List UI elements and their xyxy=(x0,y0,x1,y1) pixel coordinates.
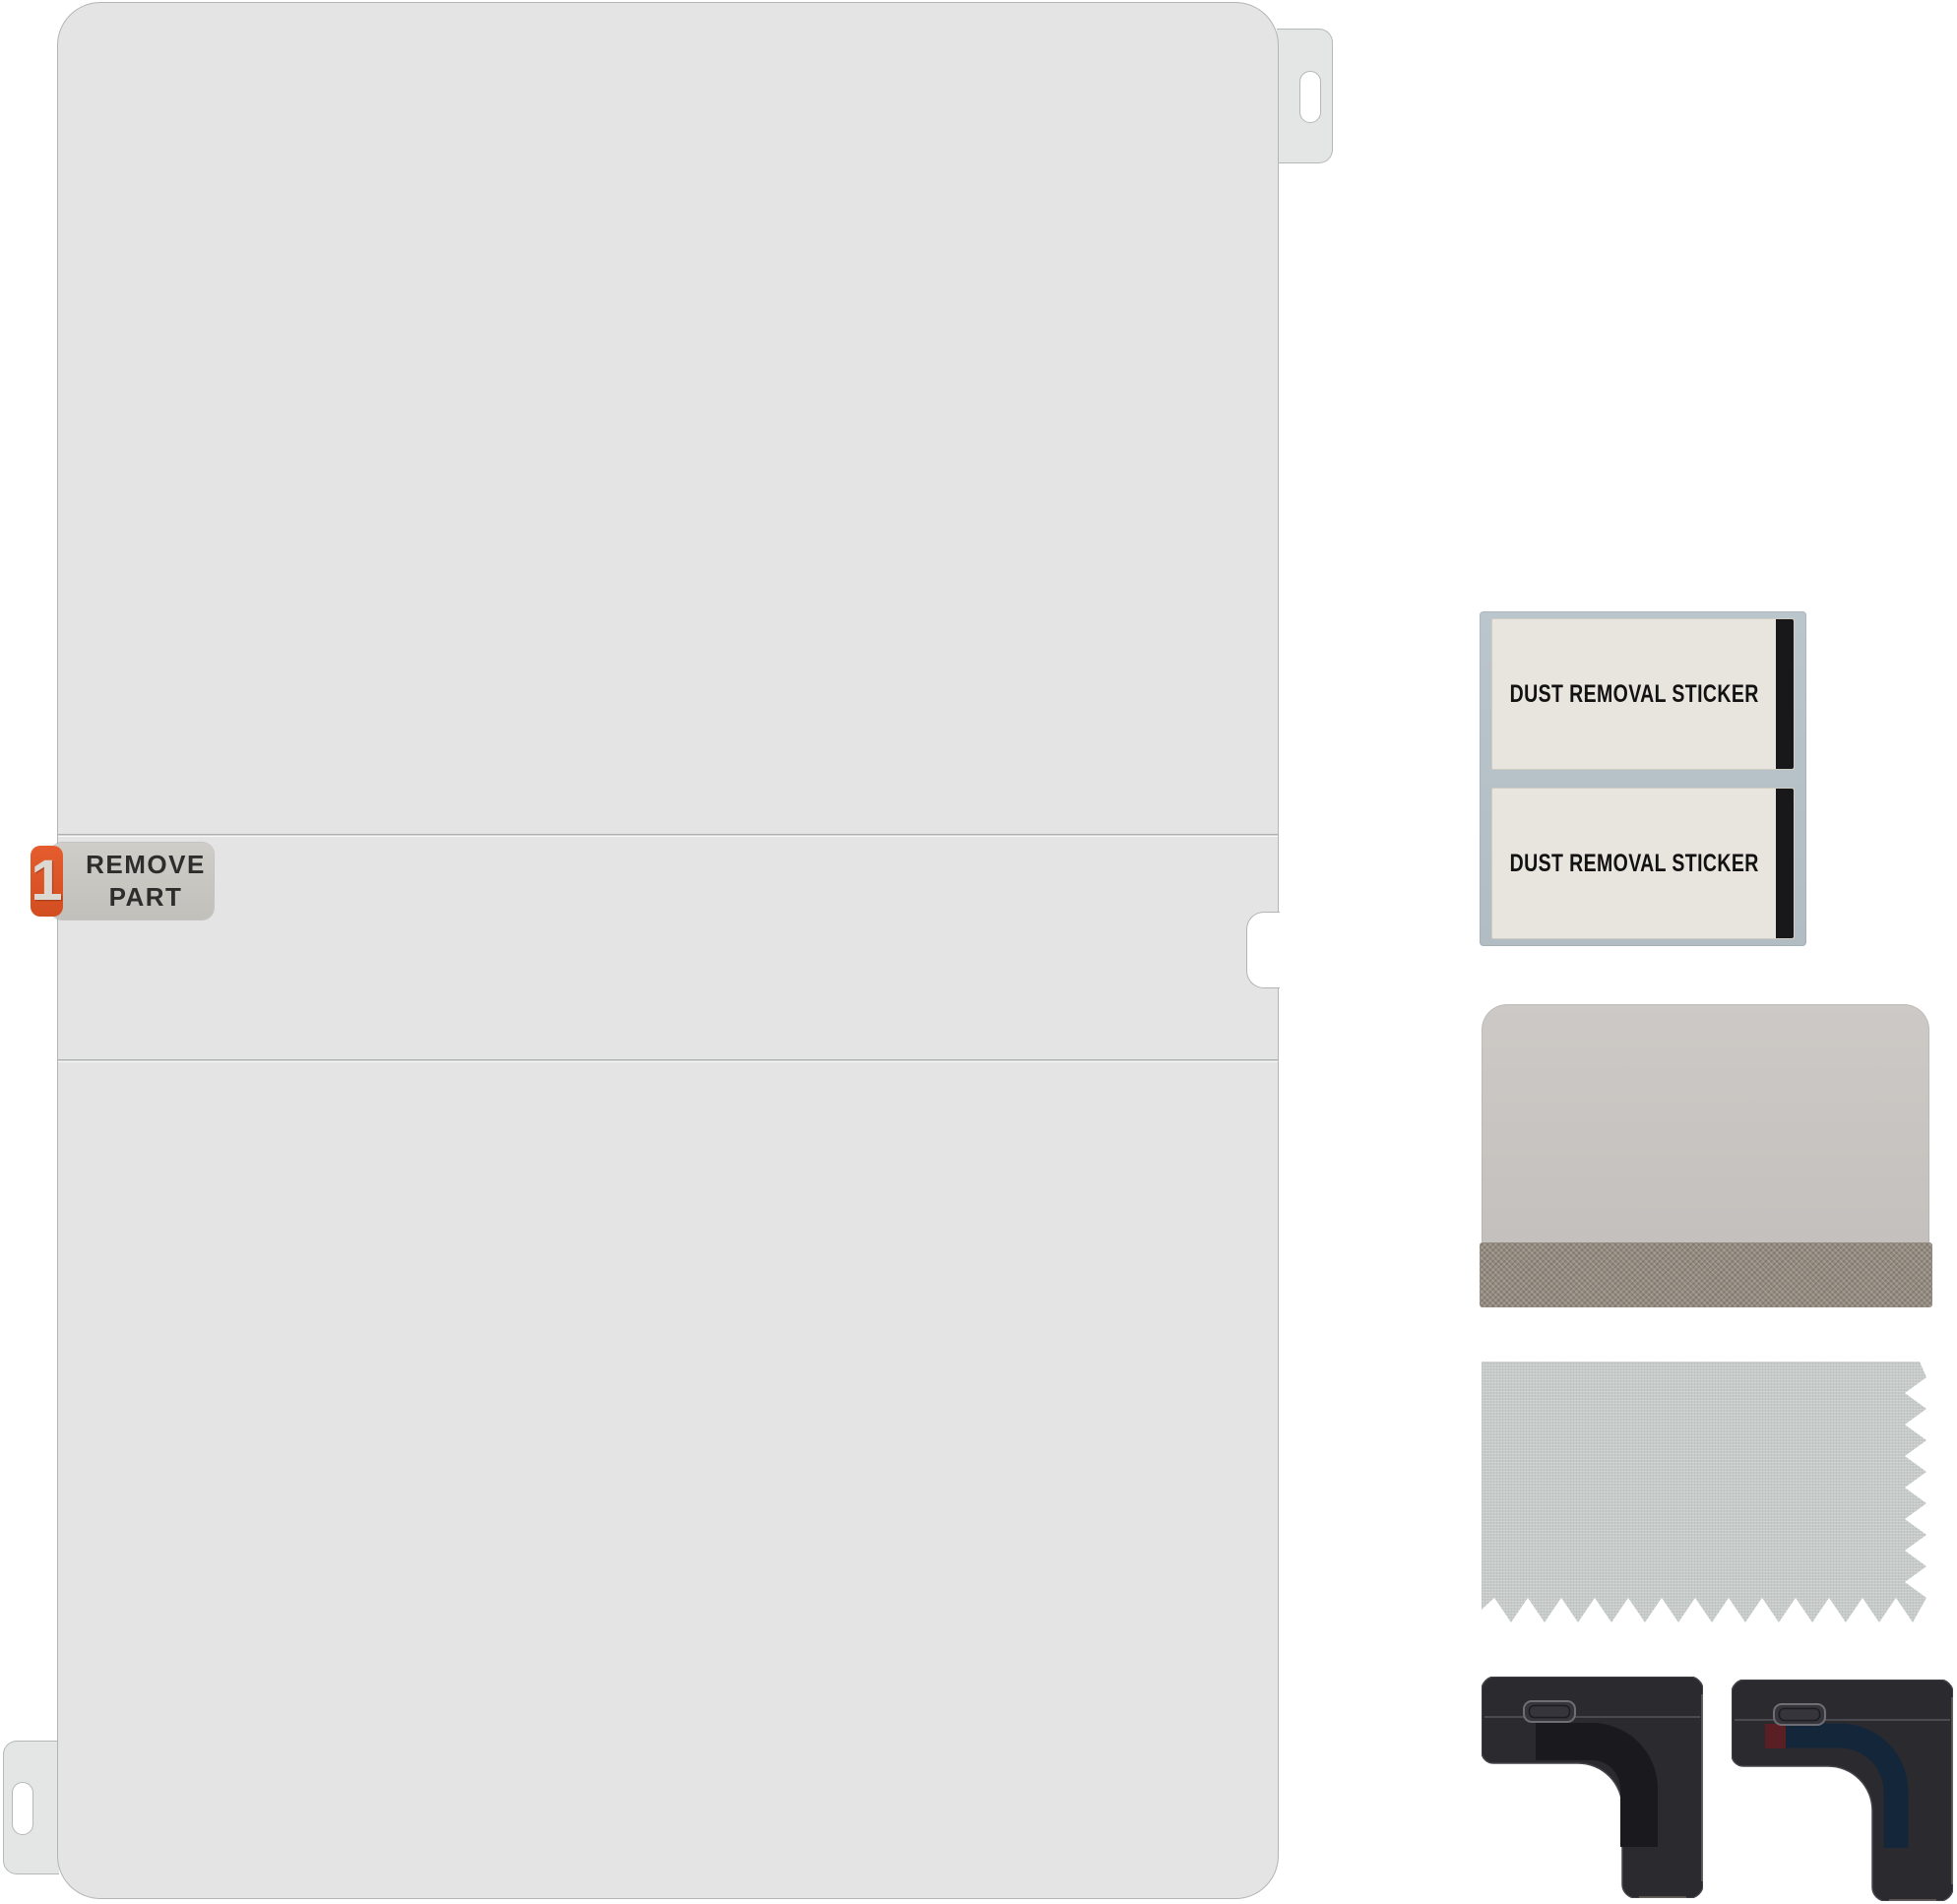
sticker-pull-strip xyxy=(1776,789,1794,938)
sticker-label-area: DUST REMOVAL STICKER xyxy=(1492,619,1776,769)
dust-removal-sticker-sheet: DUST REMOVAL STICKER DUST REMOVAL STICKE… xyxy=(1480,611,1806,946)
dust-removal-sticker: DUST REMOVAL STICKER xyxy=(1491,618,1795,770)
corner-guide-adhesive-inlay xyxy=(1536,1742,1639,1847)
liner-fold-line-1 xyxy=(58,834,1278,837)
sticker-label-area: DUST REMOVAL STICKER xyxy=(1492,789,1776,938)
sticker-label: DUST REMOVAL STICKER xyxy=(1509,850,1758,878)
remove-part-plate: REMOVE PART xyxy=(50,843,214,920)
squeegee-card xyxy=(1482,1004,1929,1246)
film-bottom-tab xyxy=(3,1741,59,1874)
film-edge-notch xyxy=(1246,912,1280,988)
step-number: 1 xyxy=(31,853,62,910)
step1-remove-part-label: REMOVE PART 1 xyxy=(31,843,222,921)
sticker-label: DUST REMOVAL STICKER xyxy=(1509,680,1758,709)
sticker-pull-strip xyxy=(1776,619,1794,769)
squeegee-felt-edge xyxy=(1480,1242,1932,1307)
liner-fold-line-2 xyxy=(58,1059,1278,1062)
corner-guide-top-clip xyxy=(1774,1704,1825,1725)
corner-guide-left xyxy=(1482,1677,1703,1898)
corner-guide-red-mark xyxy=(1765,1724,1786,1748)
corner-guide-body xyxy=(1732,1680,1953,1901)
part-label: PART xyxy=(109,881,183,914)
screen-protector-film: REMOVE PART 1 xyxy=(57,2,1279,1899)
squeegee xyxy=(1482,1004,1929,1307)
dust-removal-sticker: DUST REMOVAL STICKER xyxy=(1491,788,1795,939)
microfiber-cloth xyxy=(1482,1362,1926,1622)
tab-slot xyxy=(12,1782,33,1835)
screen-protector-kit-photo: REMOVE PART 1 DUST REMOVAL STICKER DUST … xyxy=(0,0,1957,1904)
film-top-tab xyxy=(1277,29,1333,163)
corner-guide-right xyxy=(1732,1680,1953,1901)
remove-label: REMOVE xyxy=(86,849,206,881)
corner-guide-body xyxy=(1482,1677,1703,1898)
tab-slot xyxy=(1299,71,1321,123)
step-number-tab: 1 xyxy=(31,846,63,917)
corner-guide-top-clip xyxy=(1524,1701,1575,1722)
